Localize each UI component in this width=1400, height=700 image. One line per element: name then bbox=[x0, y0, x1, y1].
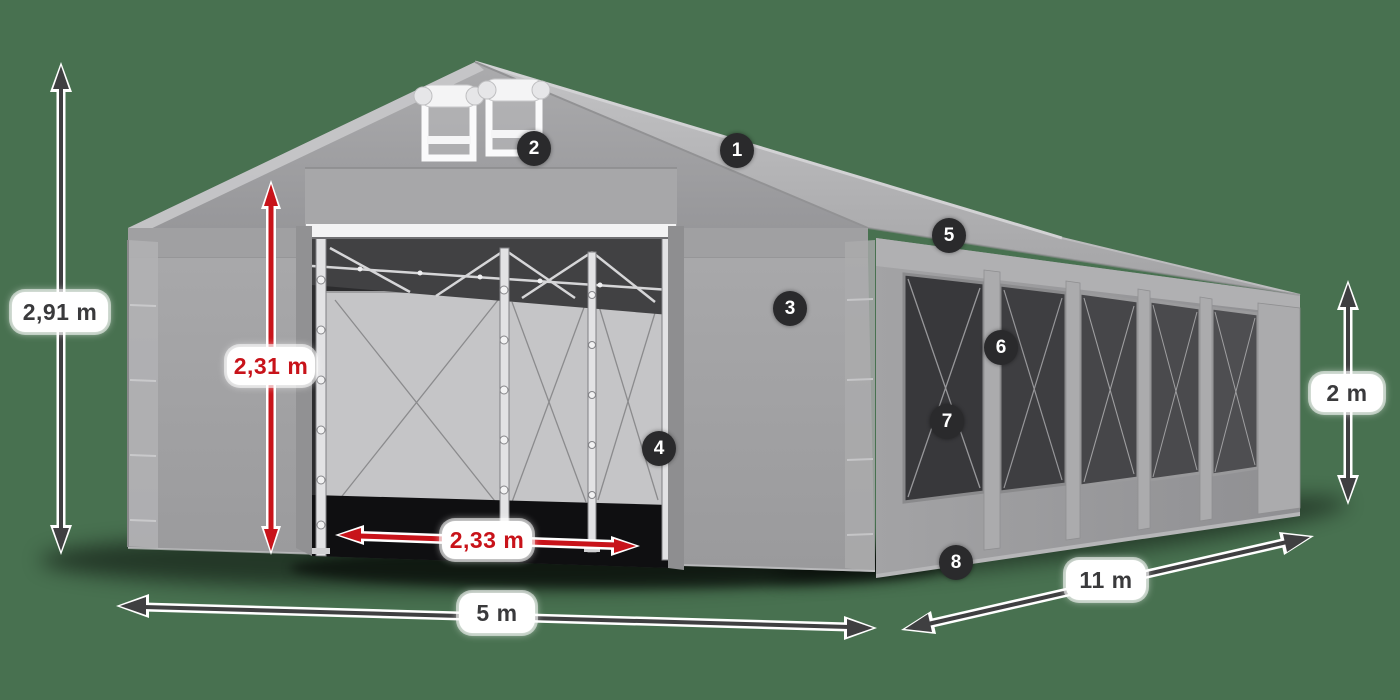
tent-interior bbox=[312, 238, 670, 568]
tent-illustration bbox=[0, 0, 1400, 700]
dimension-label-total-height: 2,91 m bbox=[12, 292, 108, 332]
entrance-header-beam bbox=[306, 224, 676, 238]
hotspot-badge-7[interactable]: 7 bbox=[930, 404, 964, 439]
tent-diagram-stage: 2,91 m 2,31 m 2,33 m 5 m 11 m 2 m 1 2 3 … bbox=[0, 0, 1400, 700]
hotspot-badge-2[interactable]: 2 bbox=[517, 131, 551, 166]
side-window-3 bbox=[1080, 293, 1138, 486]
hotspot-badge-4[interactable]: 4 bbox=[642, 431, 676, 466]
side-window-2 bbox=[1000, 285, 1066, 492]
hotspot-badge-5[interactable]: 5 bbox=[932, 218, 966, 253]
dimension-label-entrance-height: 2,31 m bbox=[227, 347, 315, 385]
side-window-5 bbox=[1212, 308, 1258, 475]
hotspot-badge-1[interactable]: 1 bbox=[720, 133, 754, 168]
side-window-4 bbox=[1150, 301, 1200, 480]
dimension-label-side-length: 11 m bbox=[1066, 560, 1146, 600]
hotspot-badge-6[interactable]: 6 bbox=[984, 330, 1018, 365]
side-window-1 bbox=[904, 274, 984, 502]
gable-vent-left bbox=[414, 85, 484, 158]
dimension-label-front-width: 5 m bbox=[459, 593, 535, 633]
hotspot-badge-3[interactable]: 3 bbox=[773, 291, 807, 326]
hotspot-badge-8[interactable]: 8 bbox=[939, 545, 973, 580]
dimension-label-entrance-width: 2,33 m bbox=[442, 521, 532, 559]
dimension-label-side-height: 2 m bbox=[1311, 374, 1383, 412]
